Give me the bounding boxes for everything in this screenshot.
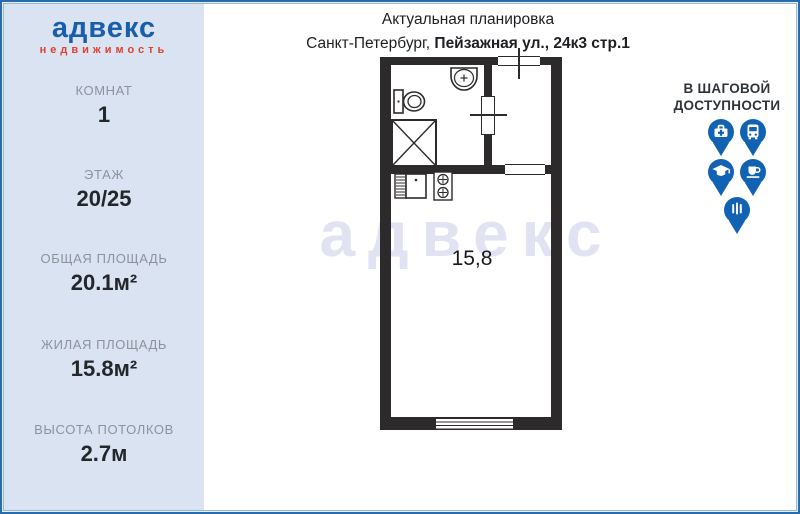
plan-address: Санкт-Петербург, Пейзажная ул., 24к3 стр… [268,35,668,53]
listing-card: адвекс недвижимость КОМНАТ 1 ЭТАЖ 20/25 … [0,0,800,514]
stove-icon [433,171,453,201]
wall-right [551,57,562,430]
address-city: Санкт-Петербург, [306,35,434,52]
toilet-icon [393,88,426,115]
floor-plan: 15,8 [2,2,798,512]
wall-left [380,57,391,430]
bathroom-door-axis [470,114,507,116]
plan-header: Актуальная планировка Санкт-Петербург, П… [268,11,668,53]
room-area-label: 15,8 [437,247,507,271]
address-street: Пейзажная ул., 24к3 стр.1 [434,35,629,52]
bath-sink-icon [449,67,479,93]
plan-title: Актуальная планировка [268,11,668,29]
window-icon [435,418,514,430]
kitchen-sink-icon [394,173,427,199]
shower-icon [391,119,437,167]
room-doorway-opening [505,164,545,175]
